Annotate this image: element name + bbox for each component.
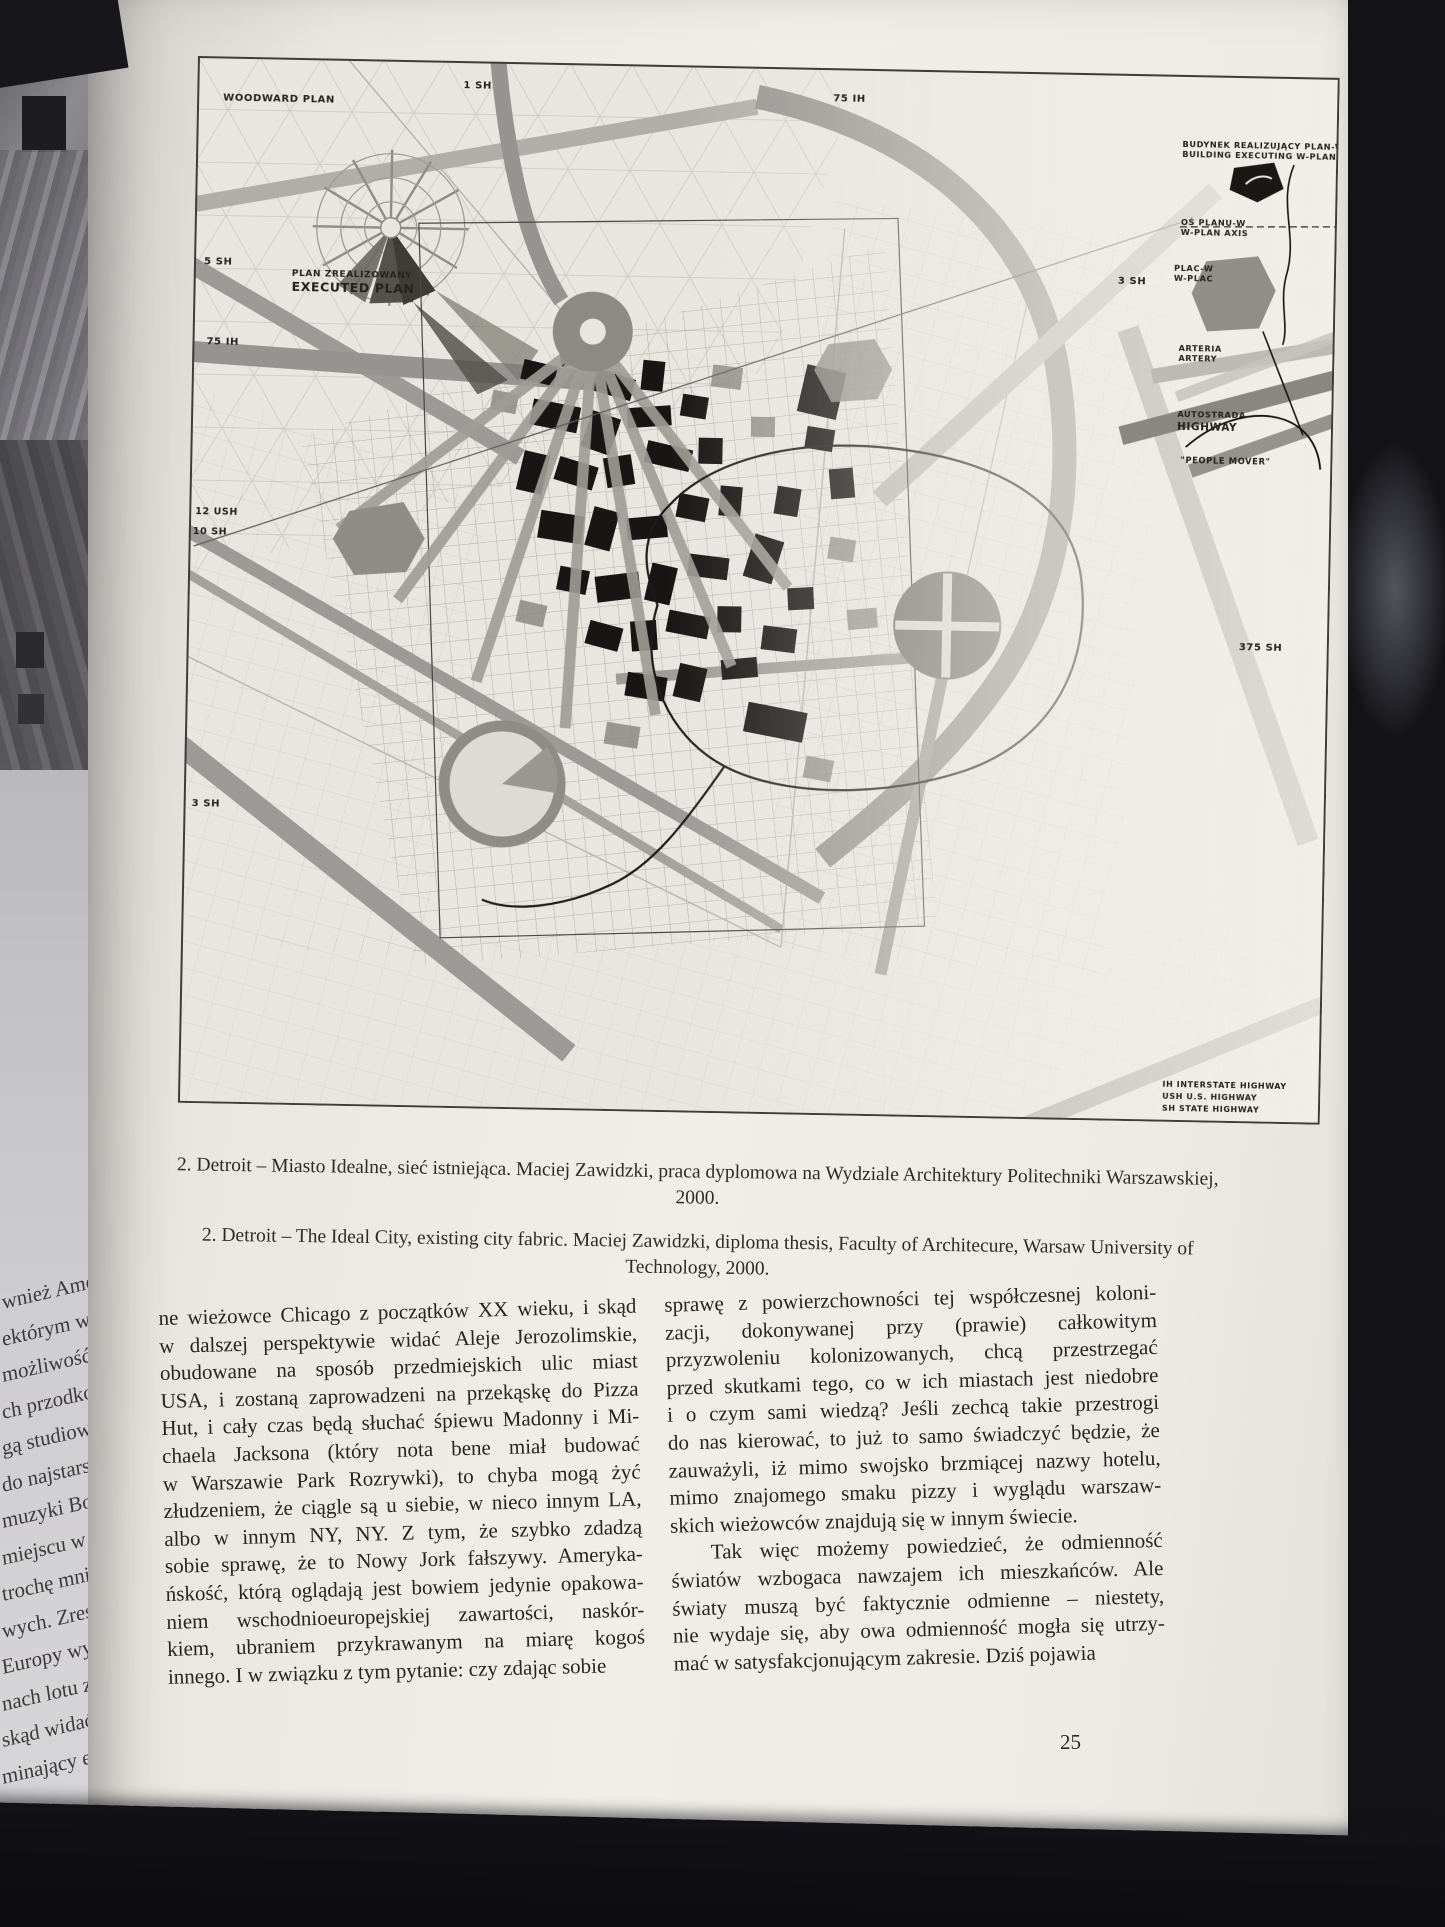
map-label-3sh-bottom: 3 SH — [192, 798, 221, 810]
legend-people-mover-label: "PEOPLE MOVER" — [1180, 455, 1270, 467]
legend-plaza-label-en: W-PLAC — [1174, 273, 1213, 284]
page-number: 25 — [1060, 1730, 1081, 1755]
map-label-12ush: 12 USH — [195, 506, 238, 518]
map-label-375sh: 375 SH — [1239, 642, 1283, 654]
map-svg: BUDYNEK REALIZUJĄCY PLAN-W BUILDING EXEC… — [178, 56, 1340, 1125]
body-text: ne wieżowce Chicago z początków XX wieku… — [158, 1279, 1166, 1691]
left-column: ne wieżowce Chicago z początków XX wieku… — [158, 1293, 646, 1692]
legend-artery-label-en: ARTERY — [1178, 353, 1217, 364]
map-label-75ih-top: 75 IH — [833, 93, 866, 105]
legend-axis-label-en: W-PLAN AXIS — [1181, 227, 1249, 238]
aerial-photo-fragment — [16, 632, 44, 668]
map-label-75ih-left: 75 IH — [206, 336, 239, 348]
figure-map: BUDYNEK REALIZUJĄCY PLAN-W BUILDING EXEC… — [178, 56, 1340, 1125]
map-label-3sh-right: 3 SH — [1118, 276, 1147, 288]
map-label-5sh: 5 SH — [204, 256, 233, 268]
map-label-executed-plan: EXECUTED PLAN — [291, 279, 414, 296]
legend-highway-label-en: HIGHWAY — [1177, 421, 1237, 434]
map-label-10sh: 10 SH — [193, 526, 228, 538]
background-blur-object — [1340, 440, 1445, 740]
map-label-woodward-plan: WOODWARD PLAN — [223, 92, 335, 105]
aerial-photo-fragment — [22, 96, 66, 152]
figure-caption-english: 2. Detroit – The Ideal City, existing ci… — [157, 1222, 1238, 1289]
right-page: BUDYNEK REALIZUJĄCY PLAN-W BUILDING EXEC… — [88, 0, 1348, 1872]
figure-caption-polish: 2. Detroit – Miasto Idealne, sieć istnie… — [157, 1152, 1238, 1219]
book-photo: wnież Ameryka ektórym wystar możliwość k… — [0, 0, 1445, 1927]
map-label-1sh: 1 SH — [463, 80, 492, 92]
legend-abbr-sh: SH STATE HIGHWAY — [1162, 1104, 1259, 1115]
aerial-photo-fragment — [18, 694, 44, 724]
legend-highway-label-pl: AUTOSTRADA — [1177, 409, 1246, 420]
right-column: sprawę z powierzchowności tej współczesn… — [664, 1279, 1166, 1678]
legend-abbr-ush: USH U.S. HIGHWAY — [1162, 1092, 1257, 1103]
